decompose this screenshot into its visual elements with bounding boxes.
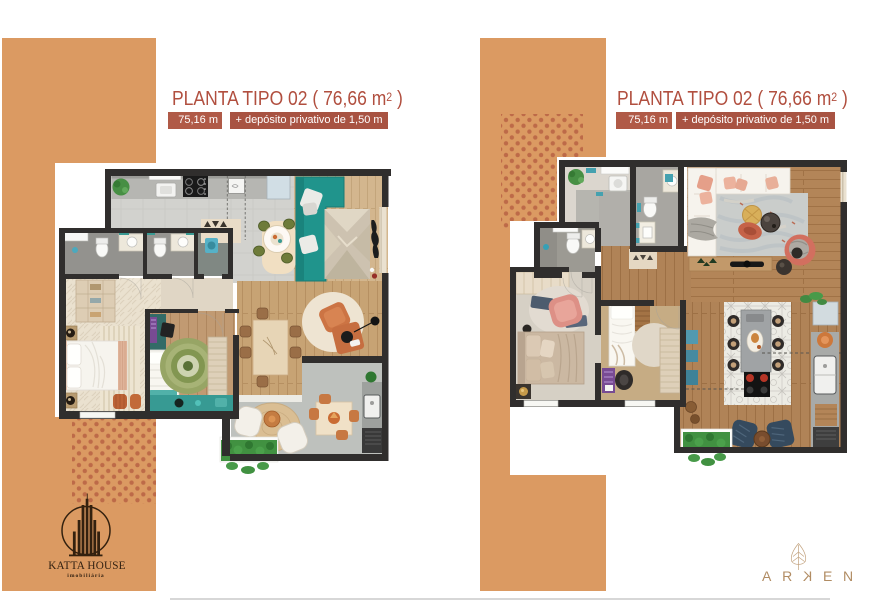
svg-text:K: K — [802, 568, 812, 584]
svg-text:AR: AR — [762, 568, 803, 584]
svg-text:KATTA HOUSE: KATTA HOUSE — [48, 560, 125, 572]
svg-text:imobiliária: imobiliária — [67, 573, 104, 579]
svg-text:EN: EN — [823, 568, 864, 584]
